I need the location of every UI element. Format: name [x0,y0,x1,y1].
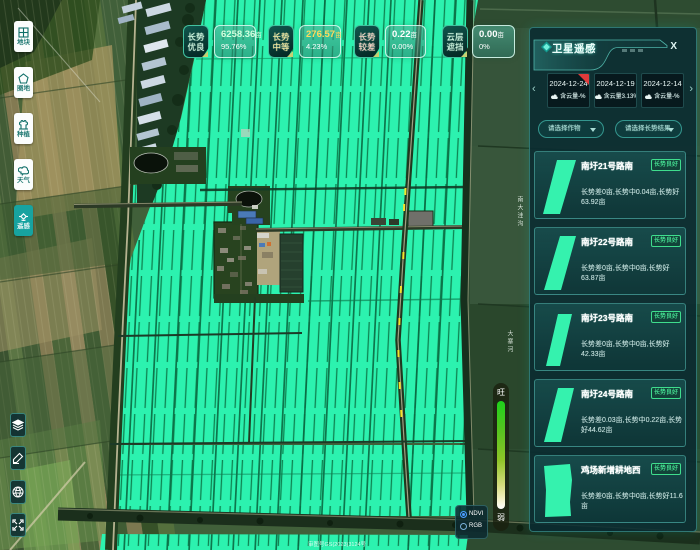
svg-text:南大洼沟: 南大洼沟 [516,195,523,228]
svg-text:审图号GS(2023)3124号: 审图号GS(2023)3124号 [308,540,367,548]
svg-text:大寨河: 大寨河 [506,329,513,354]
